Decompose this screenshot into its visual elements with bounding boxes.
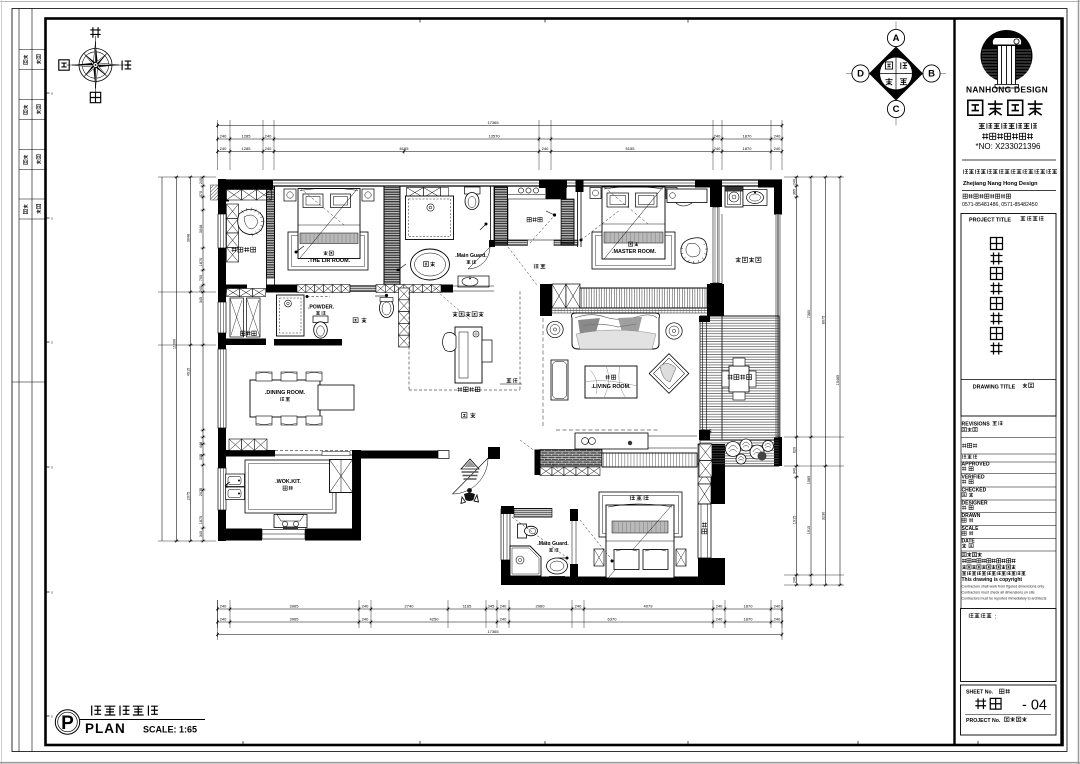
svg-text:240: 240 [265,146,272,151]
svg-text:.Main Guard.: .Main Guard. [455,253,487,259]
svg-text:*NO: X233021396: *NO: X233021396 [976,142,1041,151]
svg-text:B: B [928,69,935,80]
svg-text:448: 448 [199,442,203,448]
svg-text:1875: 1875 [199,516,203,524]
svg-text:240: 240 [199,286,203,292]
svg-text:7360: 7360 [807,310,811,318]
svg-text:8165: 8165 [400,146,410,151]
svg-text:C: C [893,104,900,115]
svg-text:11090: 11090 [172,339,176,349]
svg-text:.MASTER ROOM.: .MASTER ROOM. [612,249,657,255]
svg-text:240: 240 [792,577,796,583]
svg-text:1085: 1085 [807,476,811,484]
svg-text:.DINING ROOM.: .DINING ROOM. [265,390,306,396]
svg-text:SCALE: 1:65: SCALE: 1:65 [143,725,197,735]
svg-text:NANHONG DESIGN: NANHONG DESIGN [966,85,1048,95]
svg-text:.Main Guard.: .Main Guard. [537,541,569,547]
svg-text:SHEET No.: SHEET No. [966,690,994,696]
svg-text:DRAWING TITLE: DRAWING TITLE [973,385,1016,391]
svg-text:0571-85481486, 0571-85482450: 0571-85481486, 0571-85482450 [962,202,1038,208]
svg-text:240: 240 [500,604,507,609]
svg-text:1870: 1870 [744,604,754,609]
svg-text:Contractors shall work from fi: Contractors shall work from figured dime… [962,585,1045,589]
svg-text:2740: 2740 [405,604,415,609]
svg-text:PROJECT TITLE: PROJECT TITLE [969,218,1011,224]
svg-text:240: 240 [542,146,549,151]
svg-text:REVISIONS: REVISIONS [962,422,991,428]
svg-text:1285: 1285 [242,134,252,139]
svg-text:620: 620 [792,447,796,453]
svg-text:240: 240 [220,617,227,622]
svg-text:APPROVED: APPROVED [962,462,990,468]
svg-text:6370: 6370 [608,617,618,622]
svg-text:2075: 2075 [199,488,203,496]
svg-text:240: 240 [714,146,721,151]
svg-text:2075: 2075 [186,492,190,500]
svg-text:.LIVING ROOM.: .LIVING ROOM. [591,384,631,390]
svg-text:240: 240 [199,178,203,184]
svg-text:1870: 1870 [743,146,753,151]
svg-text:1870: 1870 [743,134,753,139]
svg-text:A: A [893,33,900,44]
svg-text:1285: 1285 [242,146,252,151]
svg-text:3965: 3965 [290,617,300,622]
svg-text:8075: 8075 [821,316,825,324]
svg-text:240: 240 [716,604,723,609]
svg-text:1915: 1915 [807,526,811,534]
svg-text:1870: 1870 [199,258,203,266]
svg-text:4250: 4250 [430,617,440,622]
svg-text:240: 240 [774,617,781,622]
svg-text:PROJECT No.: PROJECT No. [966,718,1001,724]
svg-text:240: 240 [774,146,781,151]
svg-text:Contractors must check all dim: Contractors must check all dimensions on… [962,591,1035,595]
svg-text:2060: 2060 [536,604,546,609]
svg-text:1915: 1915 [792,516,796,524]
svg-text:240: 240 [265,134,272,139]
svg-text:240: 240 [220,134,227,139]
svg-text:Zhejiang Nang Hong Design: Zhejiang Nang Hong Design [963,181,1038,187]
svg-text:365: 365 [792,189,796,195]
svg-text:4015: 4015 [186,368,190,376]
svg-text:5155: 5155 [626,146,636,151]
svg-text:240: 240 [774,134,781,139]
svg-text:240: 240 [220,146,227,151]
svg-text:- 04: - 04 [1022,698,1047,714]
svg-text:Contractors must be reported i: Contractors must be reported immediately… [962,597,1047,601]
svg-text:240: 240 [714,134,721,139]
svg-text:This drawing is copyright: This drawing is copyright [962,577,1023,583]
svg-text:P: P [61,713,74,734]
svg-text:3048: 3048 [199,225,203,233]
svg-text:345: 345 [488,604,495,609]
svg-text:240: 240 [362,604,369,609]
svg-text:240: 240 [500,617,507,622]
svg-text:3965: 3965 [290,604,300,609]
svg-text:PLAN: PLAN [85,721,126,736]
svg-text:17365: 17365 [487,629,499,634]
svg-text:3048: 3048 [186,234,190,242]
svg-text:1870: 1870 [744,617,754,622]
svg-text:240: 240 [774,604,781,609]
svg-text:240: 240 [362,617,369,622]
svg-text:1165: 1165 [463,604,472,609]
svg-text:DESIGNER: DESIGNER [962,501,989,507]
svg-text:13570: 13570 [488,134,500,139]
svg-text:340: 340 [199,531,203,537]
svg-text:15465: 15465 [836,375,840,386]
svg-text:240: 240 [792,179,796,185]
svg-text:335: 335 [199,454,203,460]
svg-text:240: 240 [716,617,723,622]
svg-text:.WOK.KIT.: .WOK.KIT. [275,479,301,485]
svg-text:.POWDER.: .POWDER. [308,305,335,311]
svg-text:700: 700 [199,275,203,281]
svg-text:.THE LIR ROOM.: .THE LIR ROOM. [308,258,351,264]
svg-text:340: 340 [792,468,796,474]
svg-text:3230: 3230 [821,512,825,520]
svg-text:370: 370 [199,191,203,197]
svg-text:345: 345 [199,297,203,303]
svg-text:D: D [857,69,864,80]
svg-text:240: 240 [220,604,227,609]
svg-text:240: 240 [575,604,582,609]
svg-text:4079: 4079 [644,604,654,609]
svg-text:17365: 17365 [487,120,499,125]
